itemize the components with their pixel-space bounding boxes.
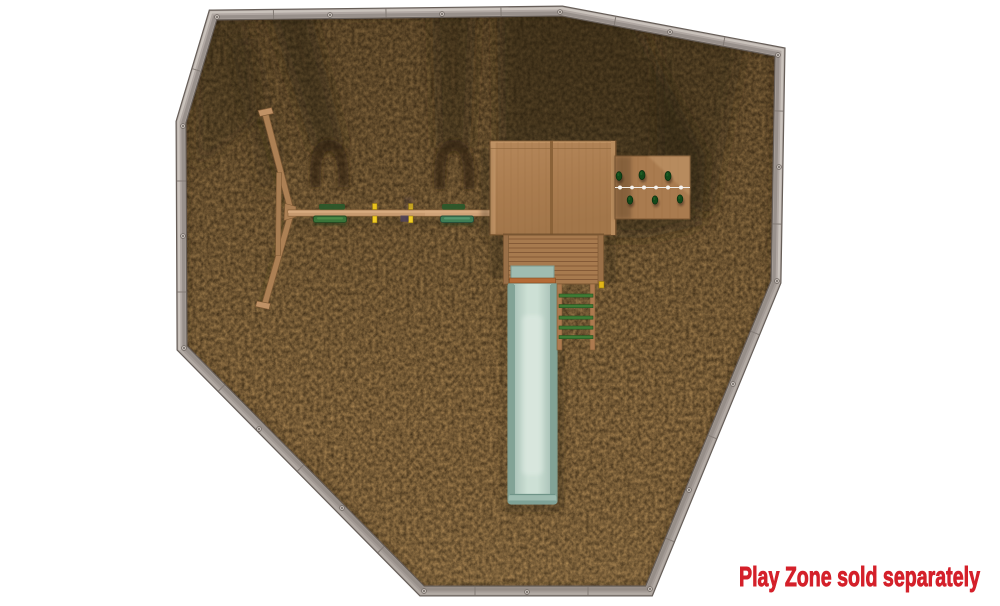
svg-text:Play Zone sold separately: Play Zone sold separately bbox=[739, 561, 980, 592]
